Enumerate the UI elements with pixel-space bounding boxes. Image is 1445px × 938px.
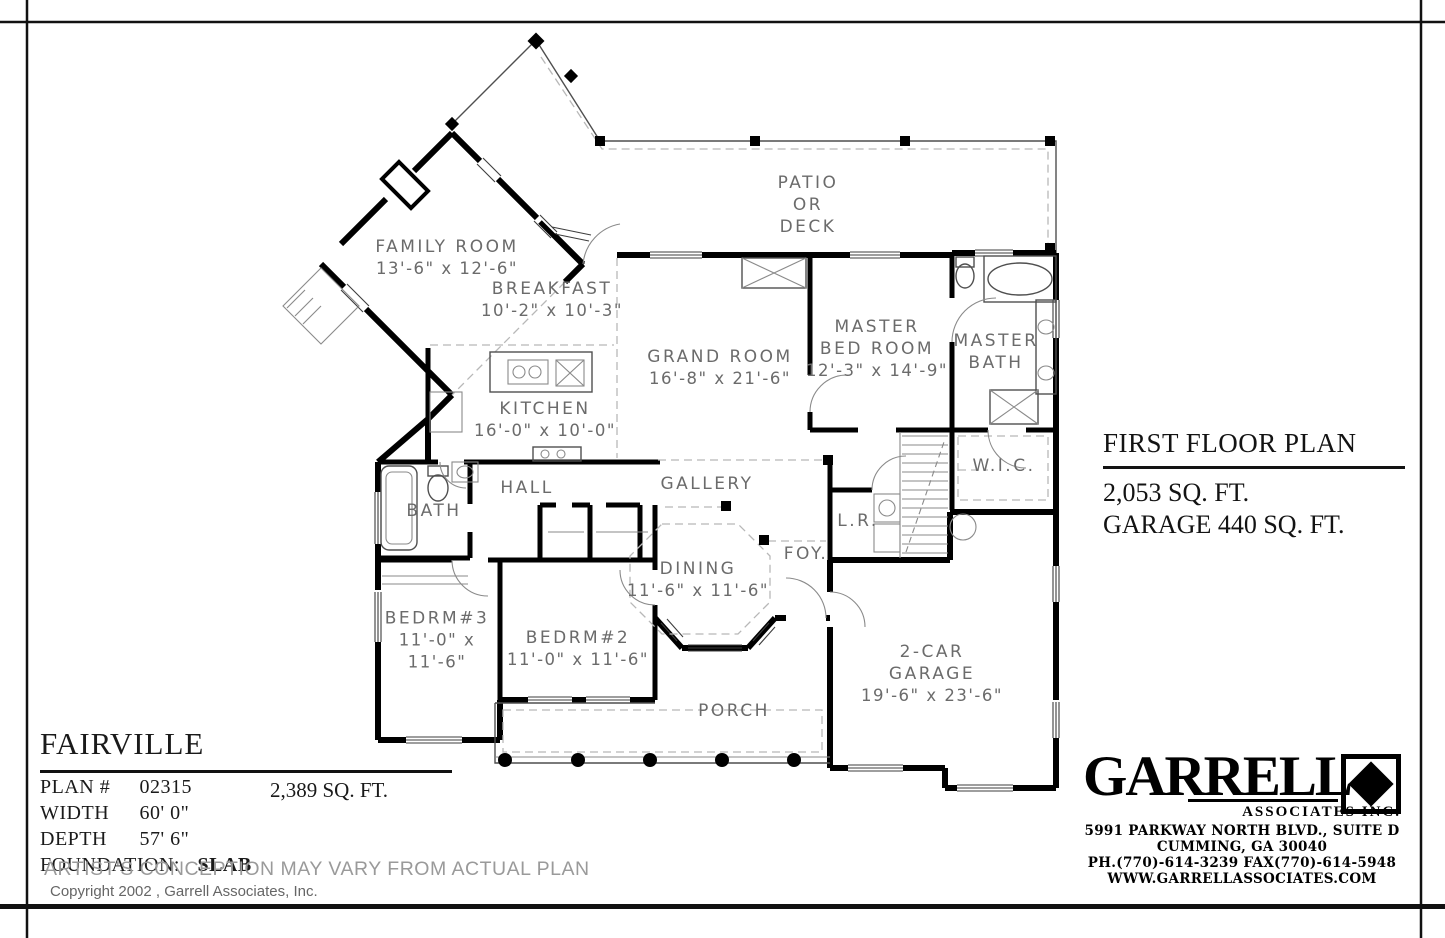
phone-fax-line: PH.(770)-614-3239 FAX(770)-614-5948 [1083,856,1401,872]
room-label-breakfast: BREAKFAST10'-2" x 10'-3" [481,278,623,322]
garage-area: GARAGE 440 SQ. FT. [1103,510,1405,540]
room-label-garage: 2-CAR GARAGE19'-6" x 23'-6" [861,641,1003,707]
plan-number-row: PLAN # 02315 [40,776,452,799]
fireplace [382,162,428,208]
company-logo-block: GARRELL ASSOCIATES INC. 5991 PARKWAY NOR… [1083,748,1401,888]
copyright-text: Copyright 2002 , Garrell Associates, Inc… [50,883,318,900]
depth-row: DEPTH 57' 6" [40,828,452,851]
room-label-kitchen: KITCHEN16'-0" x 10'-0" [474,398,616,442]
depth-label: DEPTH [40,828,122,851]
room-label-family-room: FAMILY ROOM13'-6" x 12'-6" [375,236,518,280]
plan-title: FIRST FLOOR PLAN [1103,428,1405,469]
total-area: 2,389 SQ. FT. [270,778,388,803]
porch-outline [495,703,830,767]
address-line-1: 5991 PARKWAY NORTH BLVD., SUITE D [1083,824,1401,840]
plan-title-block: FIRST FLOOR PLAN 2,053 SQ. FT. GARAGE 44… [1103,428,1405,540]
room-label-laundry-room: L.R. [837,510,879,532]
width-label: WIDTH [40,802,122,825]
disclaimer-text: ARTIST'S CONCEPTION MAY VARY FROM ACTUAL… [44,858,590,881]
plan-sheet: PATIO OR DECK FAMILY ROOM13'-6" x 12'-6"… [0,0,1445,938]
company-logo-text: GARRELL [1083,748,1351,805]
room-label-foyer: FOY. [784,543,829,565]
room-label-grand-room: GRAND ROOM16'-8" x 21'-6" [647,346,792,390]
width-row: WIDTH 60' 0" [40,802,452,825]
plan-area: 2,053 SQ. FT. [1103,478,1405,508]
room-label-master-bed-room: MASTER BED ROOM12'-3" x 14'-9" [806,316,948,382]
title-block: FAIRVILLE PLAN # 02315 WIDTH 60' 0" DEPT… [40,726,452,877]
room-label-hall: HALL [500,477,553,499]
room-label-wic: W.I.C. [973,455,1036,477]
room-label-bedroom-3: BEDRM#311'-0" x 11'-6" [385,608,490,673]
structural-posts [721,455,833,545]
room-label-bath: BATH [406,500,461,522]
plan-number-value: 02315 [140,776,193,799]
room-label-porch: PORCH [698,700,770,722]
staircase [900,432,948,558]
address-line-2: CUMMING, GA 30040 [1083,840,1401,856]
room-label-dining: DINING11'-6" x 11'-6" [627,558,769,602]
website-line: WWW.GARRELLASSOCIATES.COM [1083,872,1401,888]
plan-name: FAIRVILLE [40,726,452,773]
room-label-patio-or-deck: PATIO OR DECK [778,172,839,238]
plan-number-label: PLAN # [40,776,122,799]
room-label-bedroom-2: BEDRM#211'-0" x 11'-6" [507,627,649,671]
depth-value: 57' 6" [140,828,190,851]
width-value: 60' 0" [140,802,190,825]
patio-deck-outline [445,33,1056,253]
room-label-master-bath: MASTER BATH [953,330,1038,374]
diamond-in-square-icon [1341,754,1401,814]
room-label-gallery: GALLERY [660,473,753,495]
